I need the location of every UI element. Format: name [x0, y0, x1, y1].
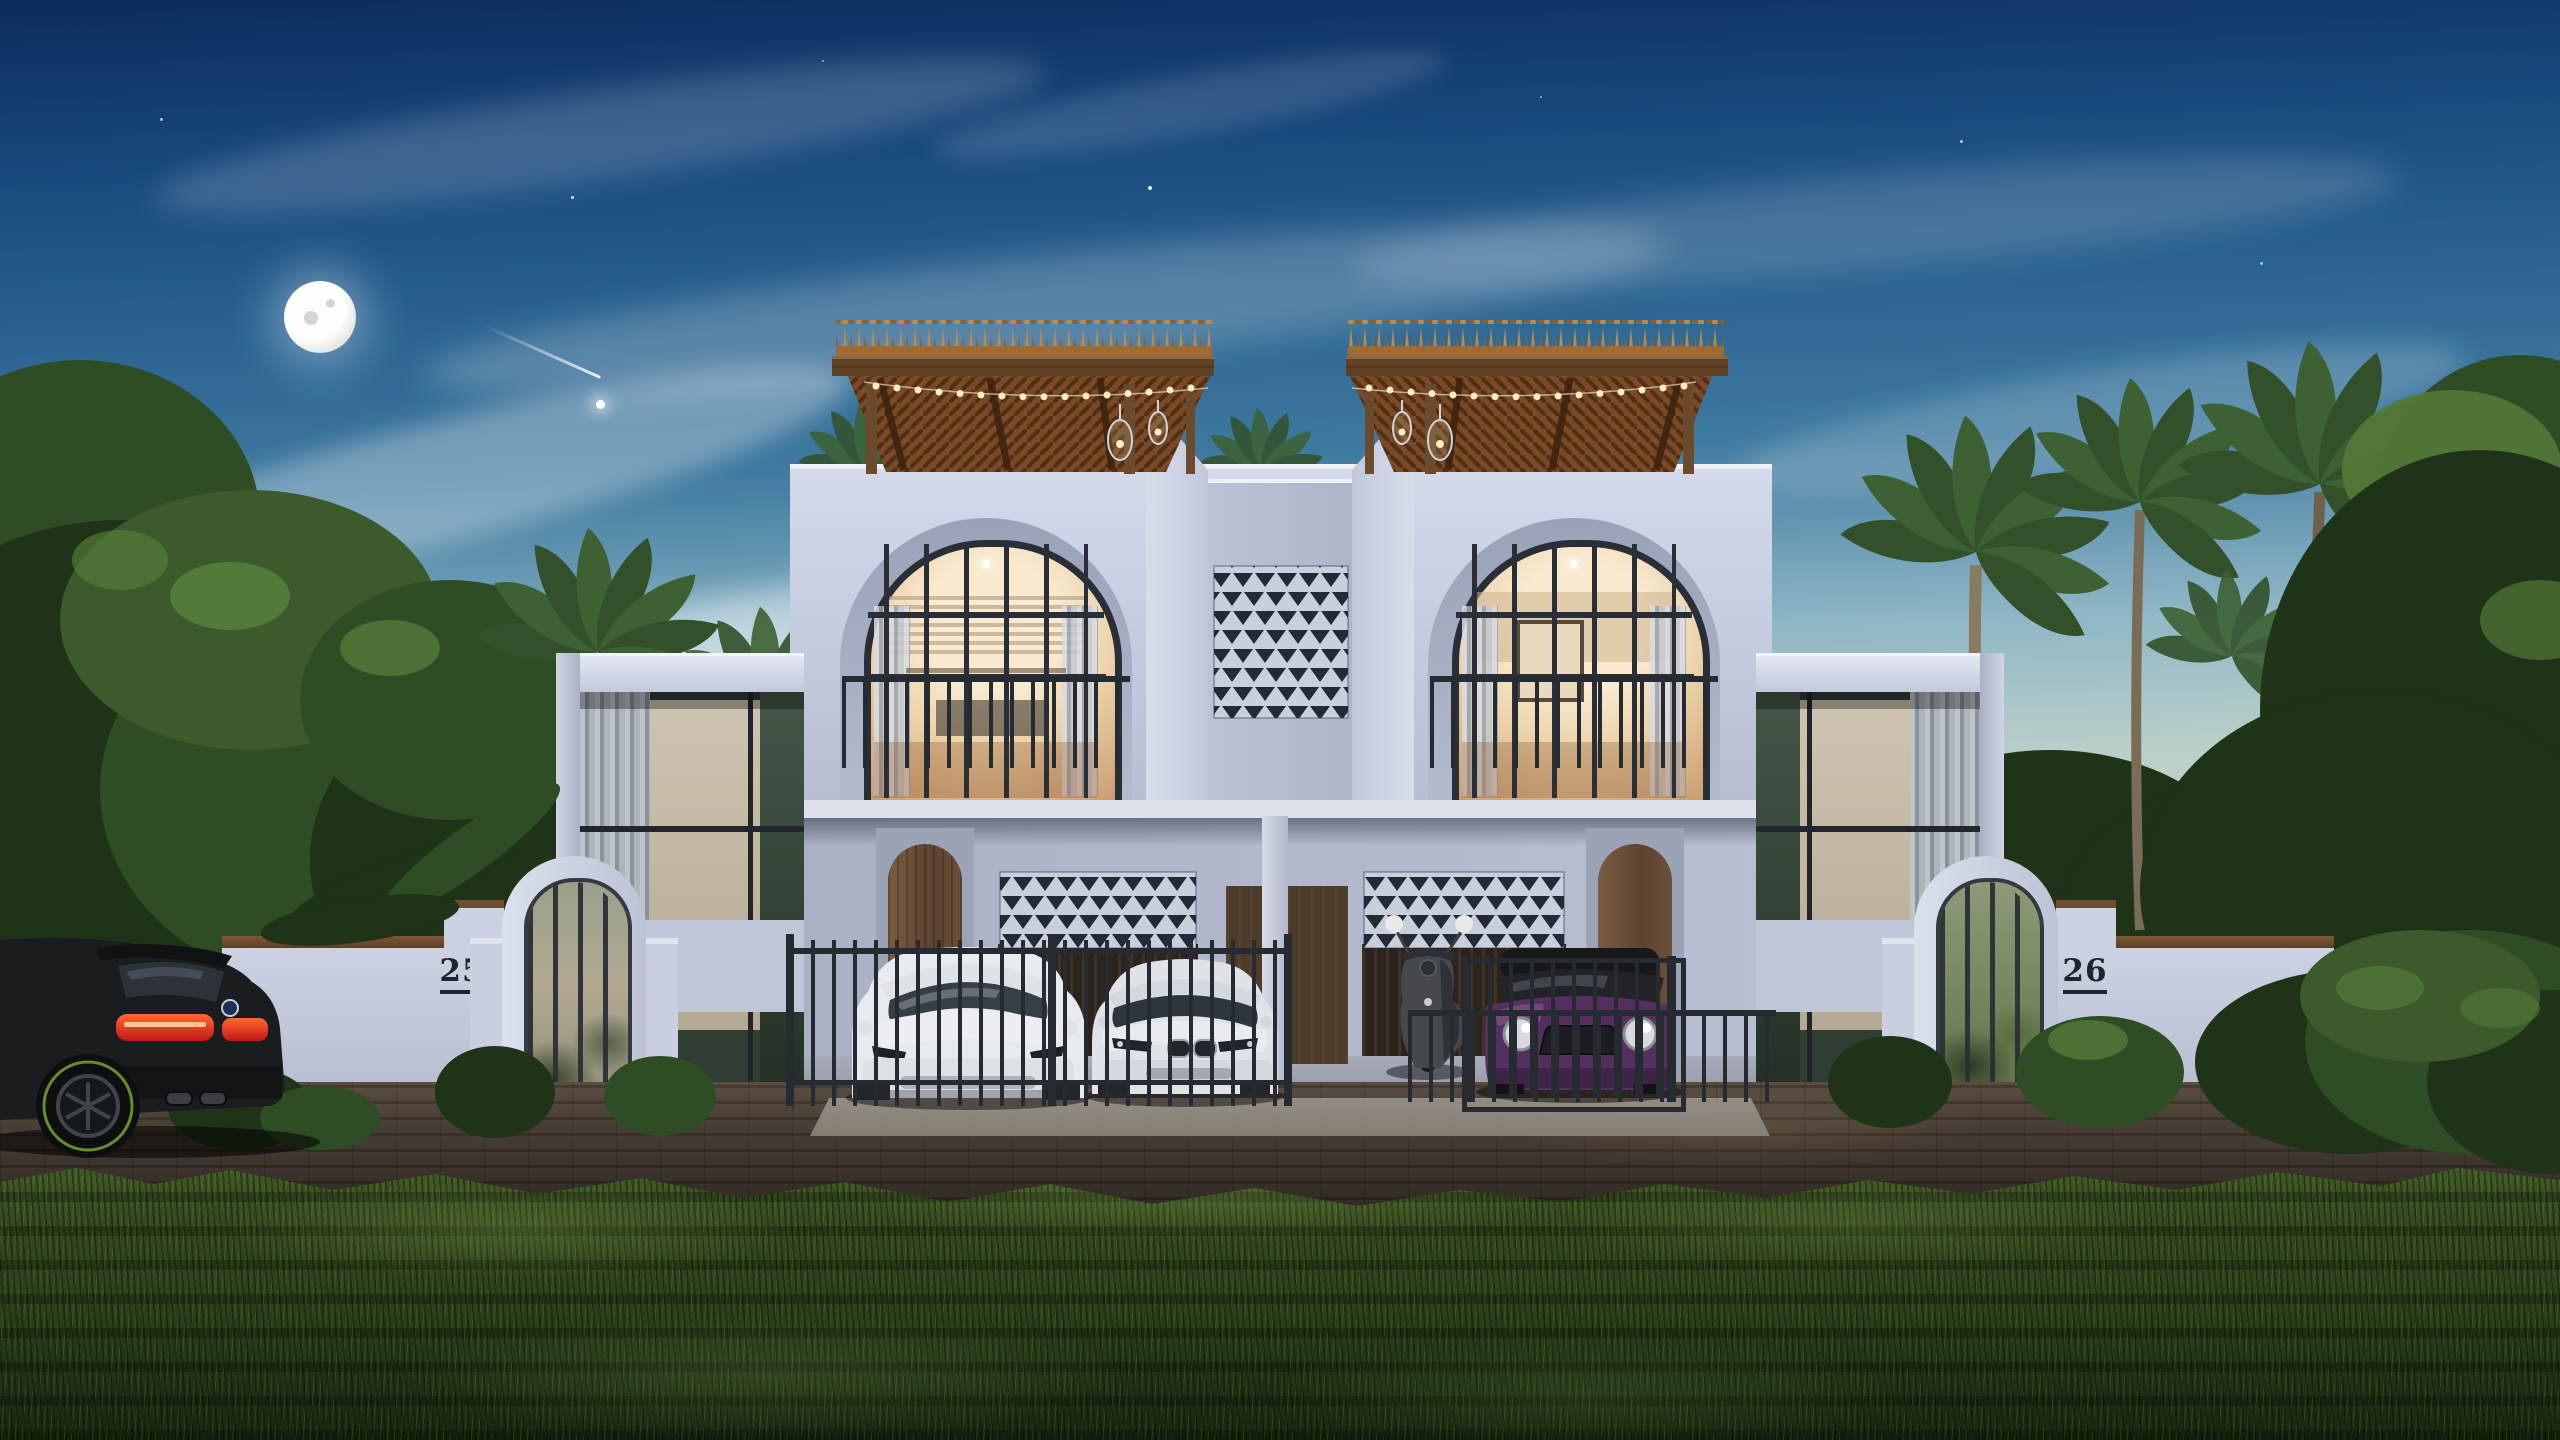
bmw-suv-rear — [0, 938, 320, 1158]
dusk-villa-scene: 25 26 — [0, 0, 2560, 1440]
